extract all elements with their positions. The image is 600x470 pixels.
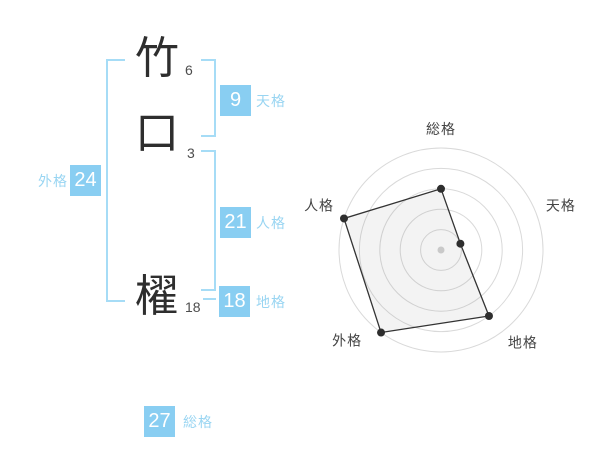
radar-data-point xyxy=(485,312,493,320)
radar-chart: 総格天格地格外格人格 xyxy=(0,0,600,470)
radar-axis-label: 天格 xyxy=(546,198,576,214)
radar-axis-label: 地格 xyxy=(508,334,538,350)
radar-data-point xyxy=(377,329,385,337)
radar-polygon xyxy=(344,189,489,333)
radar-data-point xyxy=(456,240,464,248)
radar-axis-label: 人格 xyxy=(304,198,334,214)
radar-axis-label: 総格 xyxy=(426,121,456,137)
name-fortune-panel: 竹 6 口 3 櫂 18 9 天格 21 人格 18 地格 外格 24 27 総… xyxy=(0,0,600,470)
radar-center-dot xyxy=(438,247,445,254)
radar-axis-label: 外格 xyxy=(332,332,362,348)
radar-data-point xyxy=(340,214,348,222)
radar-data-point xyxy=(437,185,445,193)
